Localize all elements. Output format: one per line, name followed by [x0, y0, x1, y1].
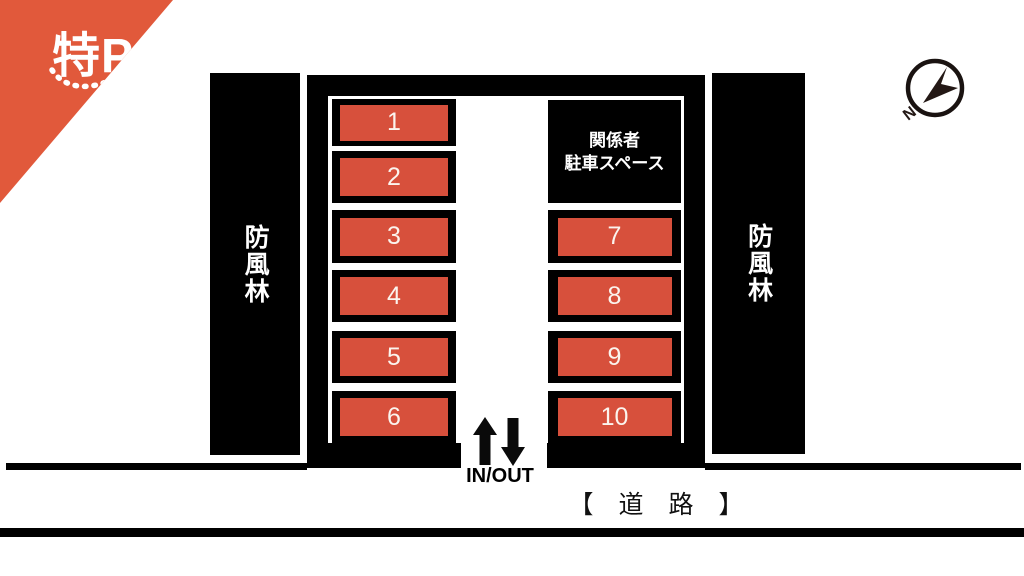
- windbreak-left: 防風林: [210, 73, 300, 455]
- in-arrow-icon: [473, 417, 497, 465]
- parking-spot-block-7: 7: [548, 210, 681, 263]
- parking-spot-10-label: 10: [601, 403, 629, 432]
- parking-spot-block-2: 2: [332, 151, 456, 203]
- staff-parking-line1: 関係者: [589, 129, 640, 152]
- parking-spot-6: 6: [340, 398, 448, 436]
- lot-frame-bottom-right: [547, 443, 705, 468]
- parking-spot-9-label: 9: [608, 343, 622, 372]
- parking-spot-7-label: 7: [608, 222, 622, 251]
- parking-spot-2: 2: [340, 158, 448, 196]
- windbreak-right: 防風林: [712, 73, 805, 454]
- road-label: 【 道 路 】: [536, 485, 776, 521]
- parking-spot-6-label: 6: [387, 403, 401, 432]
- parking-spot-5-label: 5: [387, 343, 401, 372]
- parking-spot-block-9: 9: [548, 331, 681, 383]
- lot-frame-right: [684, 75, 705, 468]
- parking-spot-block-3: 3: [332, 210, 456, 263]
- parking-spot-10: 10: [558, 398, 672, 436]
- parking-spot-5: 5: [340, 338, 448, 376]
- tokup-logo: 特P: [0, 0, 173, 203]
- parking-spot-3-label: 3: [387, 222, 401, 251]
- parking-spot-9: 9: [558, 338, 672, 376]
- parking-spot-block-5: 5: [332, 331, 456, 383]
- windbreak-right-label: 防風林: [745, 223, 771, 304]
- road-far-edge: [0, 528, 1024, 537]
- staff-parking-area: 関係者 駐車スペース: [548, 100, 681, 203]
- compass-icon: N: [900, 52, 970, 122]
- parking-lot-map: 防風林 防風林 1 2 3 4 5 6 関: [0, 0, 1024, 576]
- parking-spot-block-1: 1: [332, 99, 456, 146]
- lot-frame-left: [307, 75, 328, 468]
- parking-spot-1-label: 1: [387, 108, 401, 137]
- parking-spot-8: 8: [558, 277, 672, 315]
- road-edge-right: [705, 463, 1021, 470]
- parking-spot-2-label: 2: [387, 163, 401, 192]
- parking-spot-8-label: 8: [608, 282, 622, 311]
- parking-spot-7: 7: [558, 218, 672, 256]
- road-edge-left: [6, 463, 307, 470]
- parking-spot-4-label: 4: [387, 282, 401, 311]
- inout-label: IN/OUT: [455, 465, 545, 488]
- parking-spot-block-8: 8: [548, 270, 681, 322]
- logo-smile-icon: [48, 66, 132, 96]
- windbreak-left-label: 防風林: [242, 224, 268, 305]
- parking-spot-3: 3: [340, 218, 448, 256]
- lot-frame-top: [307, 75, 705, 96]
- parking-spot-4: 4: [340, 277, 448, 315]
- parking-spot-block-6: 6: [332, 391, 456, 443]
- out-arrow-icon: [501, 418, 525, 466]
- inout-arrows-icon: [470, 416, 530, 468]
- lot-frame-bottom-left: [307, 443, 461, 468]
- parking-spot-block-4: 4: [332, 270, 456, 322]
- compass-needle-icon: [923, 67, 958, 103]
- staff-parking-line2: 駐車スペース: [565, 152, 665, 175]
- parking-spot-block-10: 10: [548, 391, 681, 443]
- parking-spot-1: 1: [340, 105, 448, 141]
